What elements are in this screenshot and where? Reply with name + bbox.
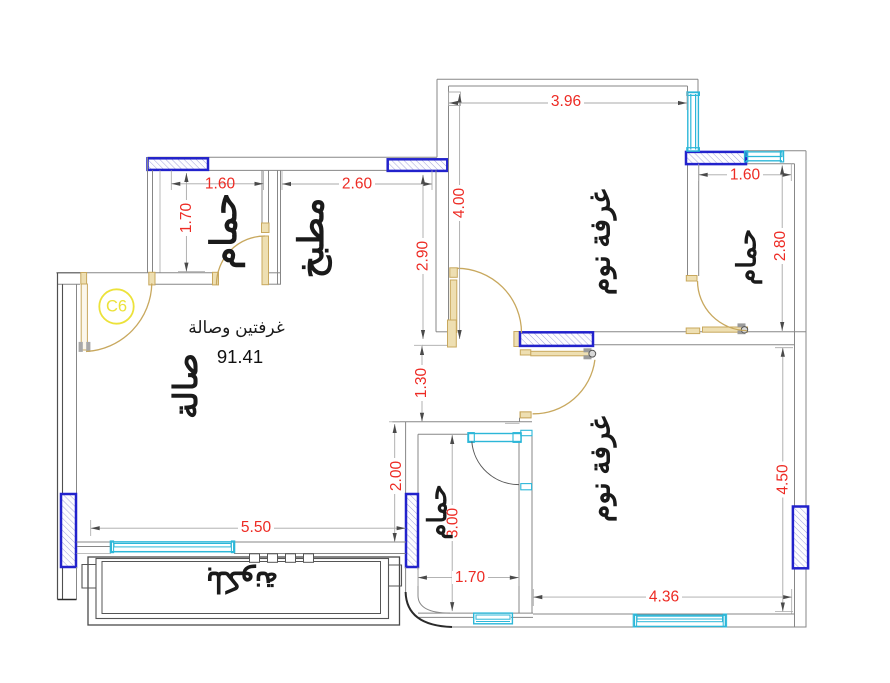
svg-text:91.41: 91.41 [217, 346, 263, 367]
svg-text:غرفتين وصالة: غرفتين وصالة [188, 318, 285, 338]
svg-text:حمام: حمام [203, 193, 246, 269]
svg-text:بلكونة: بلكونة [206, 564, 278, 597]
svg-text:4.36: 4.36 [649, 589, 679, 606]
svg-text:1.30: 1.30 [413, 368, 430, 399]
svg-text:4.00: 4.00 [451, 188, 468, 219]
svg-text:غرفة نوم: غرفة نوم [585, 189, 618, 295]
svg-text:مطبخ: مطبخ [292, 198, 333, 279]
svg-text:2.60: 2.60 [342, 176, 373, 193]
svg-text:4.50: 4.50 [775, 464, 792, 495]
svg-text:3.96: 3.96 [551, 93, 581, 110]
svg-text:حمام: حمام [732, 229, 763, 285]
svg-text:2.00: 2.00 [388, 461, 405, 492]
svg-text:صالة: صالة [167, 353, 204, 419]
svg-text:1.70: 1.70 [455, 569, 486, 586]
svg-text:2.80: 2.80 [772, 231, 789, 262]
svg-text:1.70: 1.70 [178, 203, 195, 234]
svg-text:1.60: 1.60 [730, 166, 761, 183]
svg-text:حمام: حمام [422, 484, 453, 539]
svg-text:5.50: 5.50 [241, 519, 272, 536]
svg-text:غرفة نوم: غرفة نوم [585, 416, 618, 522]
svg-text:1.60: 1.60 [205, 175, 236, 192]
svg-text:2.90: 2.90 [415, 241, 432, 272]
svg-text:C6: C6 [106, 298, 127, 316]
